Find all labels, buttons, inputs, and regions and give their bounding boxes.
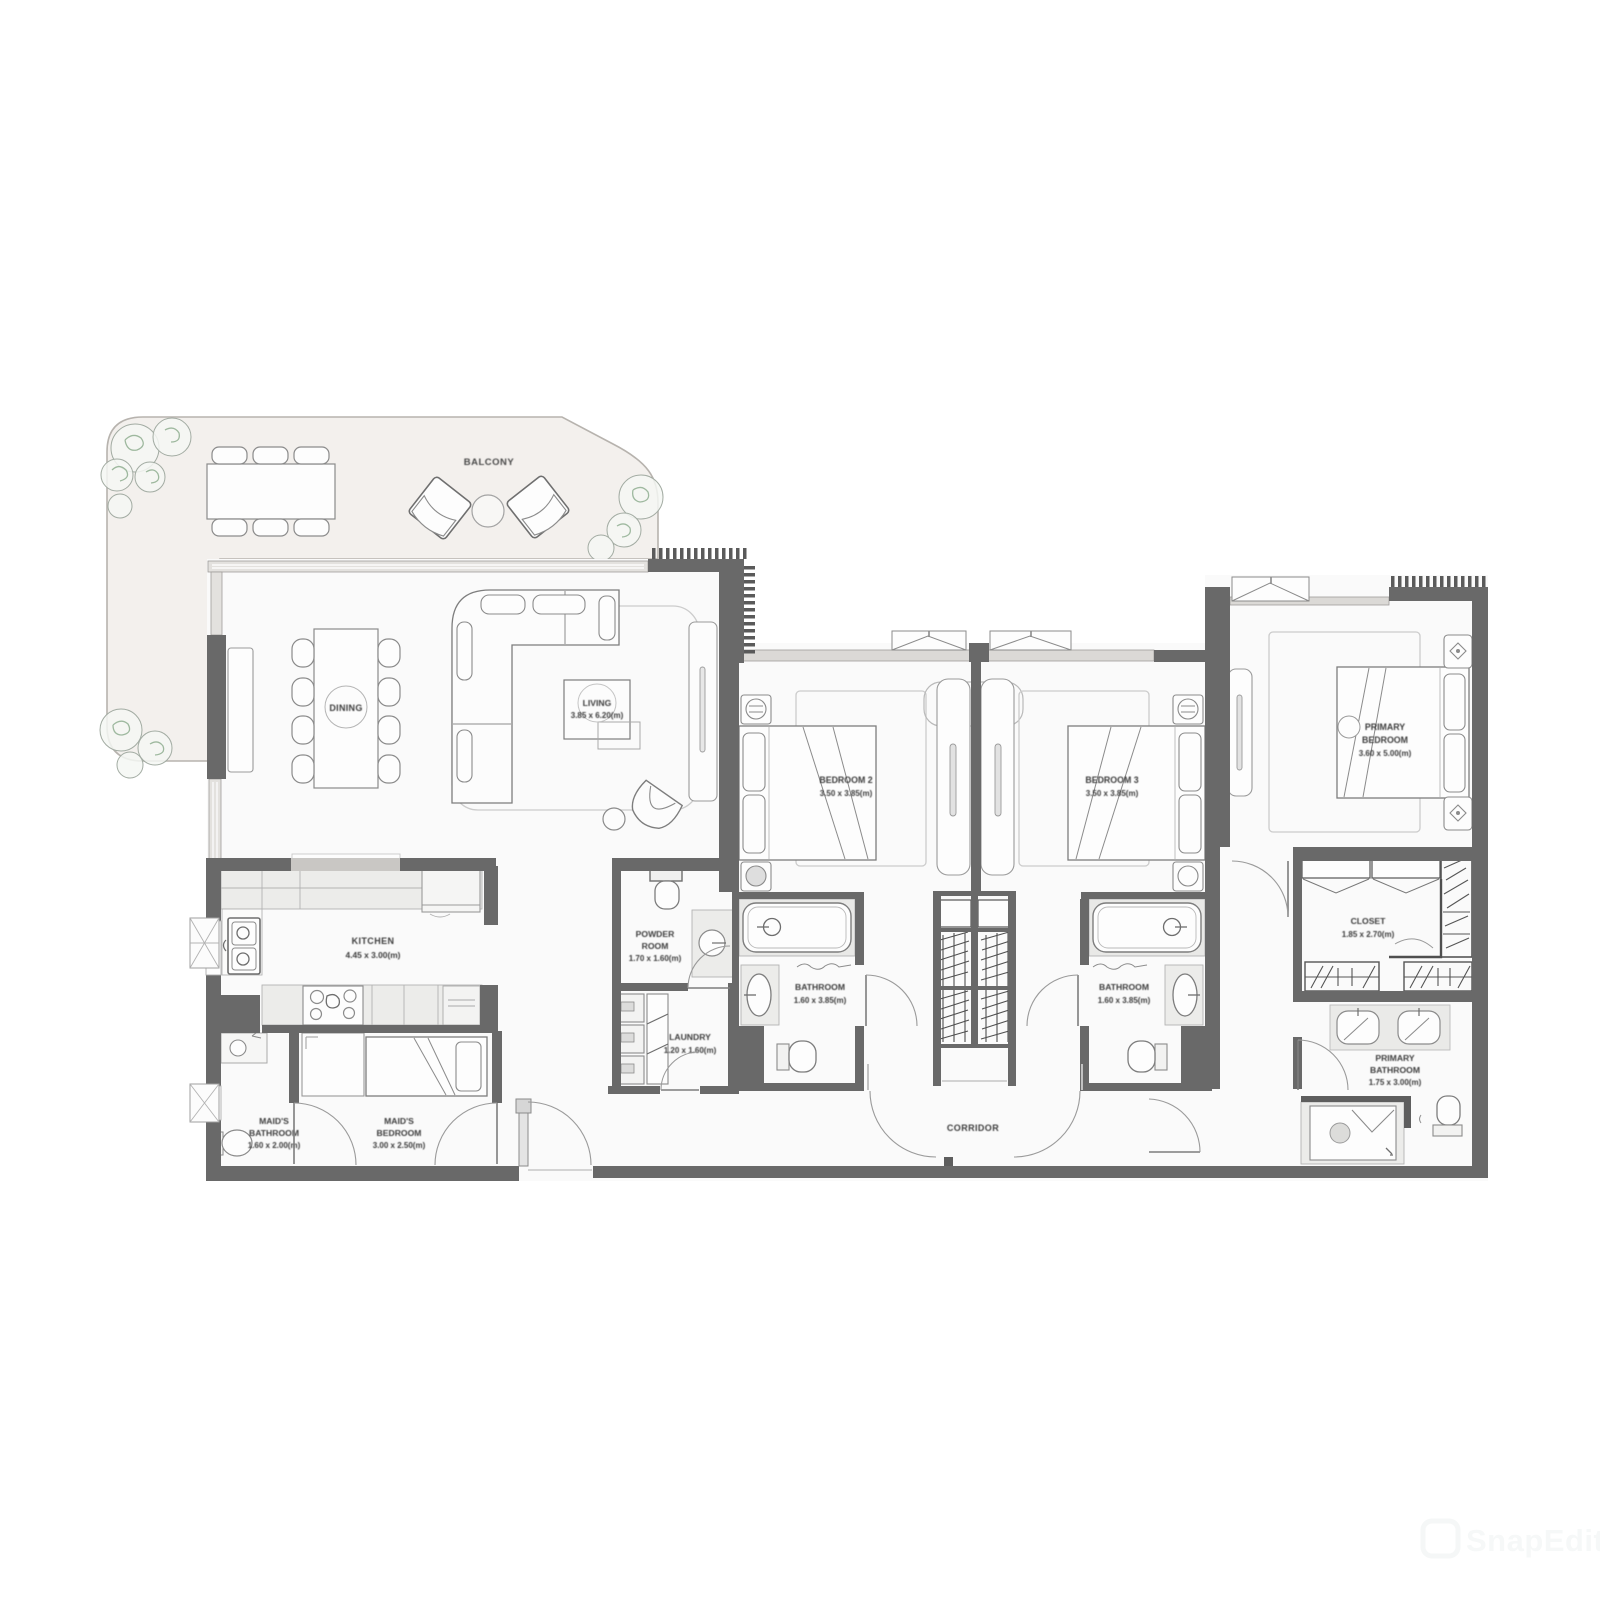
svg-text:BATHROOM: BATHROOM <box>795 982 845 992</box>
svg-text:BALCONY: BALCONY <box>464 457 515 468</box>
svg-text:DINING: DINING <box>329 703 362 713</box>
svg-text:BEDROOM: BEDROOM <box>1362 735 1408 745</box>
svg-text:PRIMARY: PRIMARY <box>1375 1053 1415 1063</box>
svg-text:BATHROOM: BATHROOM <box>249 1128 299 1138</box>
svg-text:CORRIDOR: CORRIDOR <box>947 1123 999 1133</box>
svg-text:BEDROOM 2: BEDROOM 2 <box>819 775 872 785</box>
svg-text:1.60 x 2.00(m): 1.60 x 2.00(m) <box>248 1141 301 1150</box>
svg-text:4.45 x 3.00(m): 4.45 x 3.00(m) <box>346 950 401 960</box>
svg-text:1.20 x 1.60(m): 1.20 x 1.60(m) <box>664 1046 717 1055</box>
svg-text:ROOM: ROOM <box>642 941 669 951</box>
svg-text:1.85 x 2.70(m): 1.85 x 2.70(m) <box>1342 930 1395 939</box>
svg-text:1.60 x 3.85(m): 1.60 x 3.85(m) <box>794 996 847 1005</box>
svg-text:1.70 x 1.60(m): 1.70 x 1.60(m) <box>629 954 682 963</box>
svg-text:1.60 x 3.85(m): 1.60 x 3.85(m) <box>1098 996 1151 1005</box>
svg-text:BEDROOM: BEDROOM <box>377 1128 422 1138</box>
svg-text:MAID'S: MAID'S <box>384 1116 414 1126</box>
svg-text:POWDER: POWDER <box>636 929 675 939</box>
svg-text:MAID'S: MAID'S <box>259 1116 289 1126</box>
svg-text:BEDROOM 3: BEDROOM 3 <box>1085 775 1138 785</box>
svg-text:KITCHEN: KITCHEN <box>352 936 395 946</box>
svg-text:LIVING: LIVING <box>583 698 612 708</box>
svg-text:SnapEdit: SnapEdit <box>1466 1523 1600 1558</box>
svg-text:BATHROOM: BATHROOM <box>1370 1065 1420 1075</box>
svg-text:3.00 x 2.50(m): 3.00 x 2.50(m) <box>373 1141 426 1150</box>
svg-text:LAUNDRY: LAUNDRY <box>669 1032 711 1042</box>
svg-text:1.75 x 3.00(m): 1.75 x 3.00(m) <box>1369 1078 1422 1087</box>
svg-text:PRIMARY: PRIMARY <box>1365 722 1405 732</box>
svg-text:3.60 x 5.00(m): 3.60 x 5.00(m) <box>1359 749 1412 758</box>
svg-text:BATHROOM: BATHROOM <box>1099 982 1149 992</box>
svg-text:3.50 x 3.85(m): 3.50 x 3.85(m) <box>820 789 873 798</box>
svg-text:3.50 x 3.85(m): 3.50 x 3.85(m) <box>1086 789 1139 798</box>
svg-text:3.85 x 6.20(m): 3.85 x 6.20(m) <box>571 711 624 720</box>
svg-text:CLOSET: CLOSET <box>1351 916 1387 926</box>
